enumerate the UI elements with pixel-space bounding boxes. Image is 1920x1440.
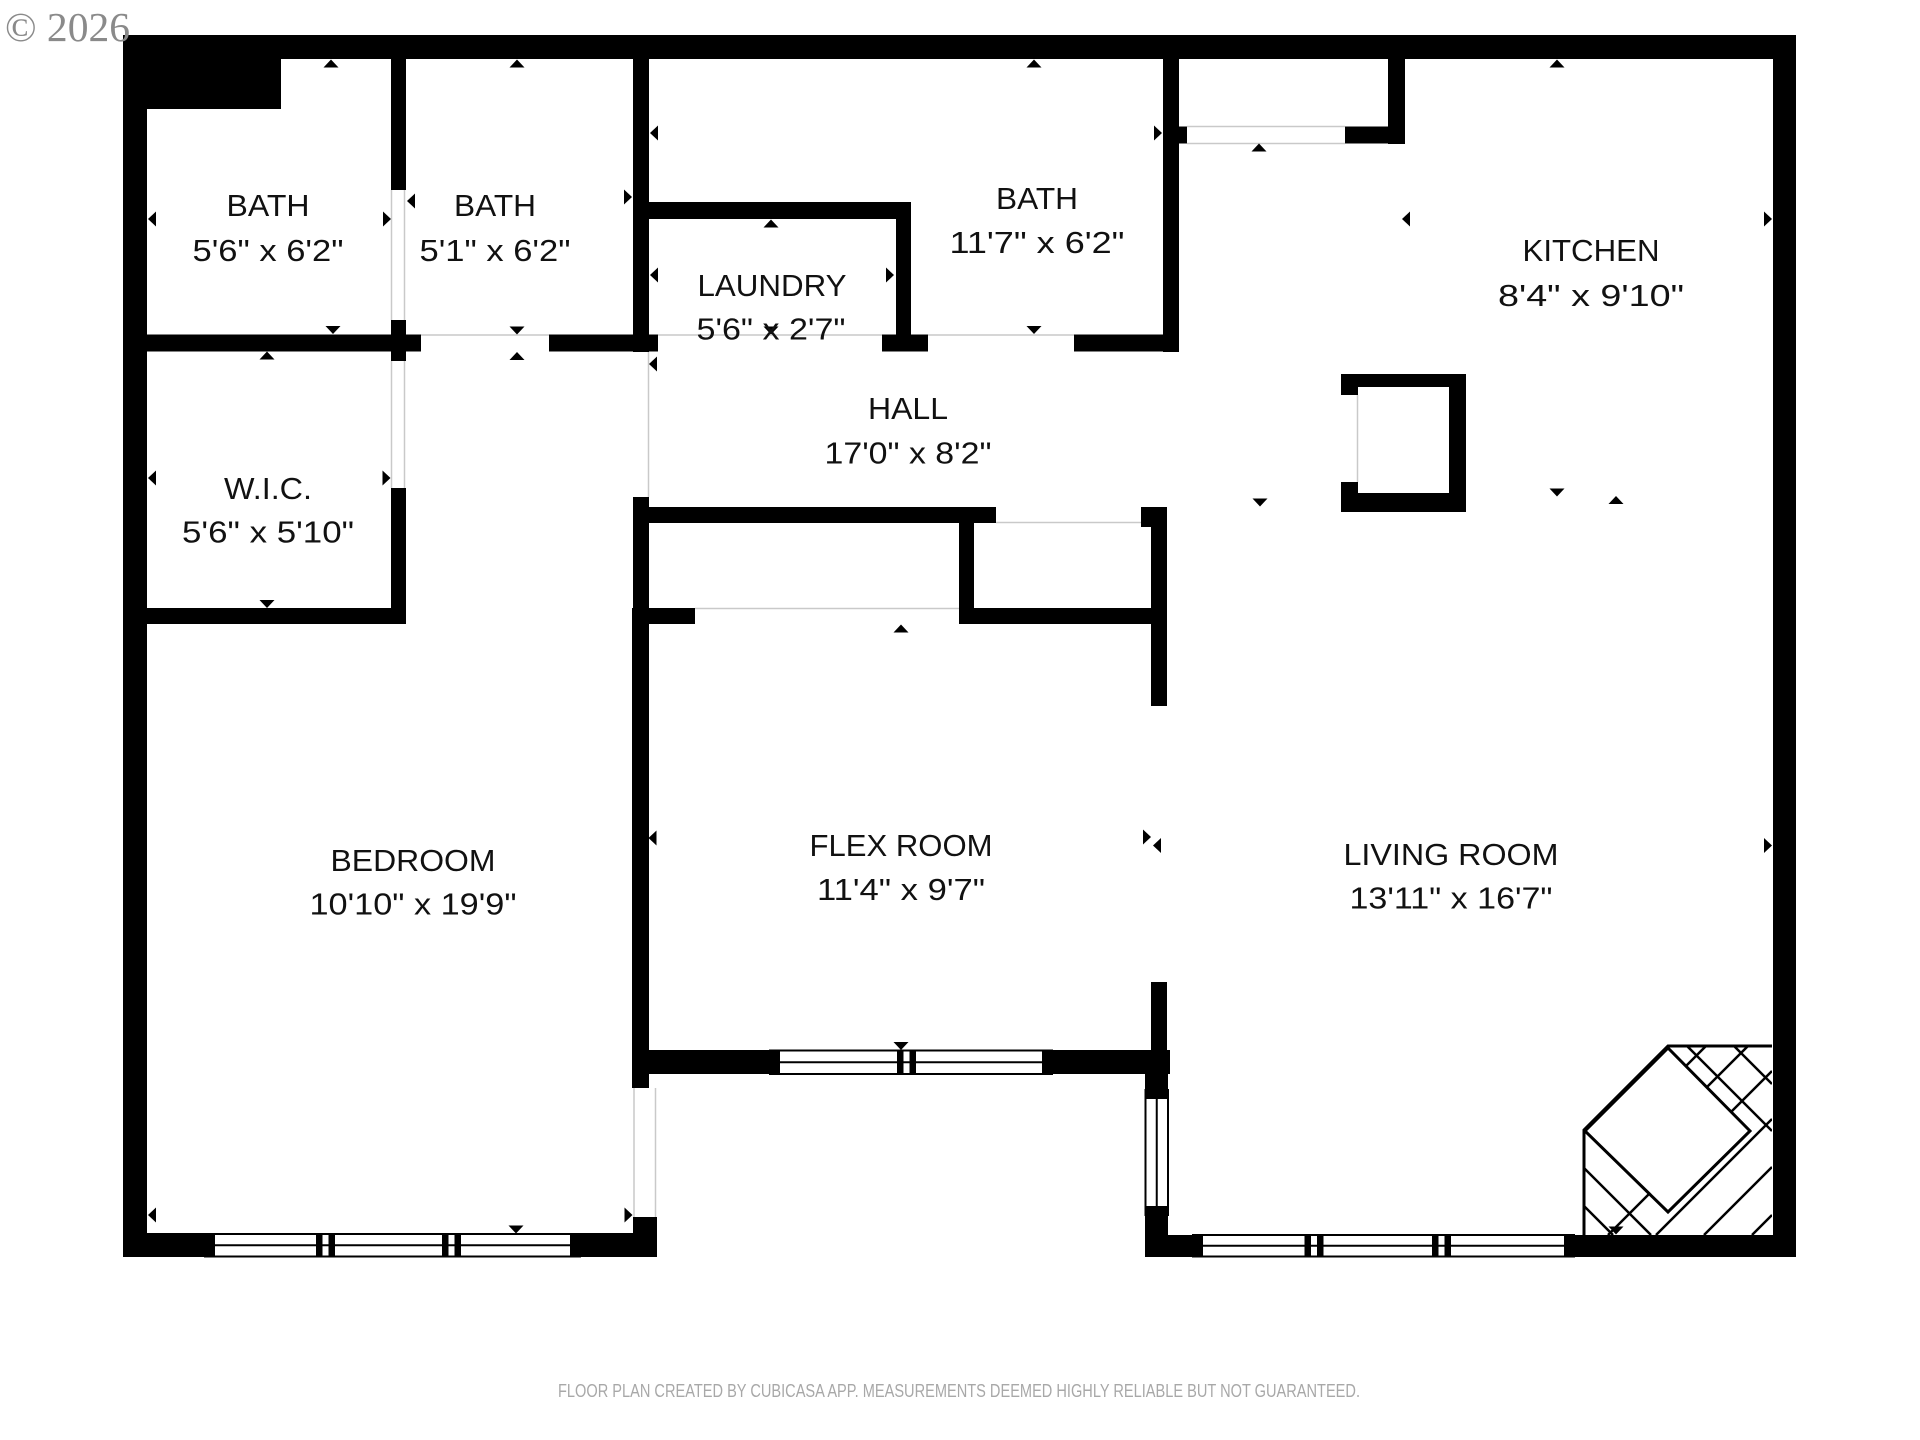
svg-text:13'11" x 16'7": 13'11" x 16'7" — [1350, 882, 1553, 916]
svg-text:8'4" x 9'10": 8'4" x 9'10" — [1498, 279, 1684, 313]
svg-text:5'6" x 2'7": 5'6" x 2'7" — [697, 313, 846, 347]
svg-text:11'4" x 9'7": 11'4" x 9'7" — [817, 873, 985, 907]
svg-text:W.I.C.: W.I.C. — [224, 472, 312, 506]
svg-text:5'6" x 6'2": 5'6" x 6'2" — [193, 234, 344, 268]
svg-text:HALL: HALL — [868, 392, 948, 426]
svg-text:KITCHEN: KITCHEN — [1523, 234, 1660, 268]
svg-text:11'7" x 6'2": 11'7" x 6'2" — [950, 226, 1125, 260]
svg-text:LAUNDRY: LAUNDRY — [698, 269, 847, 303]
svg-text:© 2026: © 2026 — [5, 4, 130, 50]
svg-text:BATH: BATH — [227, 189, 310, 223]
svg-text:BATH: BATH — [996, 182, 1078, 216]
svg-text:5'6" x 5'10": 5'6" x 5'10" — [182, 516, 354, 550]
svg-text:BEDROOM: BEDROOM — [331, 844, 496, 878]
svg-text:5'1" x 6'2": 5'1" x 6'2" — [420, 234, 571, 268]
svg-text:17'0" x 8'2": 17'0" x 8'2" — [825, 437, 992, 471]
svg-text:FLOOR PLAN CREATED BY CUBICASA: FLOOR PLAN CREATED BY CUBICASA APP. MEAS… — [558, 1380, 1360, 1401]
svg-text:BATH: BATH — [454, 189, 536, 223]
svg-text:LIVING ROOM: LIVING ROOM — [1344, 838, 1559, 872]
svg-text:FLEX ROOM: FLEX ROOM — [810, 829, 993, 863]
svg-text:10'10" x 19'9": 10'10" x 19'9" — [310, 888, 517, 922]
